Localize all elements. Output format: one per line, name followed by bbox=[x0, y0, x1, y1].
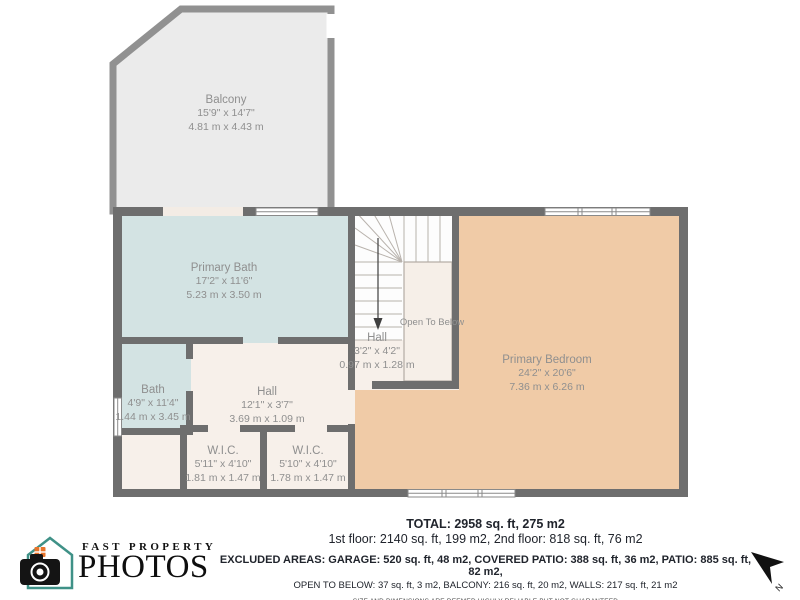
excluded-areas-line1: EXCLUDED AREAS: GARAGE: 520 sq. ft, 48 m… bbox=[213, 554, 758, 578]
floor-plan-page: N Balcony 15'9" x 14'7" 4.81 m x 4.43 m … bbox=[0, 0, 800, 600]
room-dims-metric: 0.97 m x 1.28 m bbox=[339, 359, 414, 373]
room-label-hall: Hall 12'1" x 3'7" 3.69 m x 1.09 m bbox=[229, 385, 304, 426]
room-name: Bath bbox=[115, 383, 190, 397]
room-dims-imperial: 24'2" x 20'6" bbox=[502, 367, 591, 381]
room-dims-metric: 1.81 m x 1.47 m bbox=[185, 472, 260, 486]
room-dims-metric: 1.44 m x 3.45 m bbox=[115, 411, 190, 425]
room-label-balcony: Balcony 15'9" x 14'7" 4.81 m x 4.43 m bbox=[188, 93, 263, 134]
room-dims-imperial: 5'10" x 4'10" bbox=[270, 458, 345, 472]
room-dims-imperial: 17'2" x 11'6" bbox=[186, 275, 261, 289]
room-dims-imperial: 15'9" x 14'7" bbox=[188, 107, 263, 121]
room-dims-imperial: 4'9" x 11'4" bbox=[115, 397, 190, 411]
room-dims-imperial: 12'1" x 3'7" bbox=[229, 399, 304, 413]
room-name: Primary Bedroom bbox=[502, 353, 591, 367]
room-name: W.I.C. bbox=[270, 444, 345, 458]
logo-text-main: PHOTOS bbox=[78, 547, 209, 587]
summary-block: TOTAL: 2958 sq. ft, 275 m2 1st floor: 21… bbox=[213, 517, 758, 600]
room-label-wic-1: W.I.C. 5'11" x 4'10" 1.81 m x 1.47 m bbox=[185, 444, 260, 485]
floor-areas-text: 1st floor: 2140 sq. ft, 199 m2, 2nd floo… bbox=[213, 532, 758, 546]
room-label-primary-bath: Primary Bath 17'2" x 11'6" 5.23 m x 3.50… bbox=[186, 261, 261, 302]
room-dims-metric: 7.36 m x 6.26 m bbox=[502, 381, 591, 395]
balcony-door-opening bbox=[163, 207, 243, 216]
excluded-areas-line2: OPEN TO BELOW: 37 sq. ft, 3 m2, BALCONY:… bbox=[213, 580, 758, 591]
room-label-wic-2: W.I.C. 5'10" x 4'10" 1.78 m x 1.47 m bbox=[270, 444, 345, 485]
room-label-primary-bedroom: Primary Bedroom 24'2" x 20'6" 7.36 m x 6… bbox=[502, 353, 591, 394]
room-dims-metric: 3.69 m x 1.09 m bbox=[229, 413, 304, 427]
camera-icon bbox=[20, 554, 60, 585]
room-name: Hall bbox=[229, 385, 304, 399]
room-name: Balcony bbox=[188, 93, 263, 107]
room-name: Hall bbox=[339, 331, 414, 345]
room-dims-imperial: 3'2" x 4'2" bbox=[339, 345, 414, 359]
room-name: Primary Bath bbox=[186, 261, 261, 275]
open-to-below-label: Open To Below bbox=[400, 317, 464, 328]
total-area-text: TOTAL: 2958 sq. ft, 275 m2 bbox=[213, 517, 758, 531]
room-dims-metric: 1.78 m x 1.47 m bbox=[270, 472, 345, 486]
room-dims-metric: 4.81 m x 4.43 m bbox=[188, 121, 263, 135]
company-logo: FAST PROPERTY PHOTOS bbox=[20, 535, 250, 595]
balcony-wall-opening bbox=[327, 14, 335, 38]
room-label-small-hall: Hall 3'2" x 4'2" 0.97 m x 1.28 m bbox=[339, 331, 414, 372]
room-label-bath: Bath 4'9" x 11'4" 1.44 m x 3.45 m bbox=[115, 383, 190, 424]
north-label: N bbox=[773, 582, 785, 594]
room-name: W.I.C. bbox=[185, 444, 260, 458]
floor-plan-svg: N bbox=[0, 0, 800, 600]
room-dims-imperial: 5'11" x 4'10" bbox=[185, 458, 260, 472]
room-dims-metric: 5.23 m x 3.50 m bbox=[186, 289, 261, 303]
